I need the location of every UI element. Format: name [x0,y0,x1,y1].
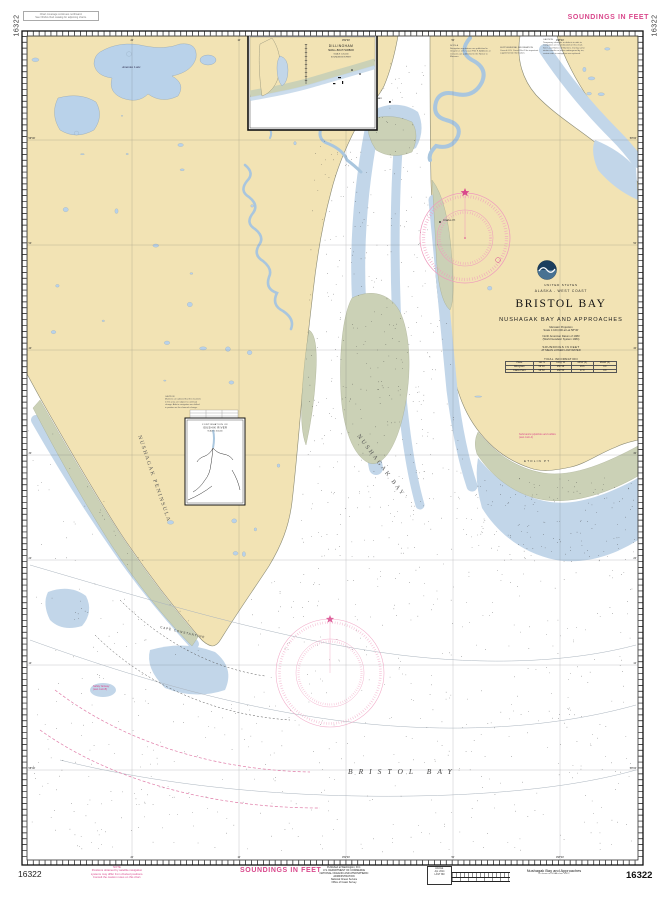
label-etolin-pt: ETOLIN PT [524,459,550,463]
svg-text:159°00': 159°00' [342,39,351,42]
svg-text:158°40': 158°40' [556,39,565,42]
svg-text:50': 50' [451,856,455,859]
noaa-logo [538,261,557,280]
pond [56,284,60,287]
chart-canvas: NUSHAGAK PENINSULA NUSHAGAK BAY BRISTOL … [0,0,667,900]
chart-number-bottom-left: 16322 [18,869,42,879]
chart-number-left-margin: 16322 [13,15,20,37]
pond [605,48,610,51]
inset-a-sub: SMALL-BOAT HARBOR [328,49,354,52]
svg-text:20': 20' [130,39,134,42]
pond [164,341,170,345]
svg-text:30': 30' [29,452,33,455]
pond [126,52,131,57]
pond [587,92,592,95]
svg-text:40': 40' [633,347,637,350]
svg-text:158°40': 158°40' [556,856,565,859]
inset-b-scale: SCALE 1:100,000 [207,430,222,433]
bottom-magenta-note: NOTEPositions obtained by satellite navi… [84,866,150,880]
chart-subtitle: NUSHAGAK BAY AND APPROACHES [497,317,625,323]
pond [247,351,252,355]
label-amanka-lake: Amanka Lake [121,65,141,69]
svg-text:20': 20' [29,557,33,560]
chart-number-right-margin: 16322 [651,15,658,37]
pond [126,153,128,155]
svg-text:59°00': 59°00' [630,137,637,140]
border-scale-ruler-lower [452,877,510,882]
title-country: UNITED STATES [497,283,625,287]
pond [190,273,193,275]
svg-text:50': 50' [451,39,455,42]
chart-number-bottom-right: 16322 [626,870,652,881]
pond [187,302,192,307]
svg-text:58°00': 58°00' [29,767,36,770]
pond [254,528,257,531]
inset-a-soundings: SOUNDINGS IN FEET [331,56,352,58]
clarks-point-mark [439,221,441,223]
inset-b: CONTINUATION OF IGUSHIK RIVER SCALE 1:10… [185,418,245,505]
label-bristol-bay: BRISTOL BAY [348,767,458,776]
pond [294,142,297,145]
pond [242,552,245,557]
svg-text:10': 10' [237,856,241,859]
series-subtitle: as shown on NOAA chart 16322 [522,873,586,875]
tidal-information-table: TIDAL INFORMATION Place Lat. N Long. W M… [505,358,617,374]
nautical-chart-page: NUSHAGAK PENINSULA NUSHAGAK BAY BRISTOL … [0,0,667,900]
pond [74,131,79,135]
pond [229,381,234,384]
svg-text:20': 20' [633,557,637,560]
pond [63,207,68,211]
svg-text:10': 10' [633,662,637,665]
pond [178,143,184,146]
pond [51,330,56,333]
series-caption: Nushagak Bay and Approaches as shown on … [522,868,586,875]
scale-note: Scale 1:100,000 at Lat 58°30' [497,329,625,332]
adjoining-chart-note: Chart coverage continues northward.See N… [23,11,99,21]
svg-text:50': 50' [633,242,637,245]
dillingham-mark [389,101,391,103]
tidal-row-clarks-point: Clarks Point 58°50' 158°33' 17.9 0.0 [506,369,617,373]
title-block: UNITED STATES ALASKA - WEST COAST BRISTO… [497,283,625,373]
svg-text:159°00': 159°00' [342,856,351,859]
svg-text:50': 50' [29,242,33,245]
inset-a: DILLINGHAM SMALL-BOAT HARBOR SCALE 1:20,… [248,35,377,130]
pond [588,77,595,80]
pond [80,154,84,155]
pond [153,244,159,247]
inset-b-sub: IGUSHIK RIVER [203,425,228,429]
soundings-note-top: SOUNDINGS IN FEET [568,14,649,21]
pond [251,205,254,208]
pond [583,67,586,71]
pond [180,169,184,171]
pond [200,347,207,350]
pond [102,320,105,322]
pond [277,464,280,467]
svg-text:30': 30' [633,452,637,455]
title-region: ALASKA - WEST COAST [497,289,625,293]
datum-note-2: (World Geodetic System 1984) [497,338,625,341]
soundings-note-bottom: SOUNDINGS IN FEET [240,867,321,874]
svg-text:10': 10' [237,39,241,42]
svg-text:20': 20' [130,856,134,859]
pond [115,209,118,214]
svg-text:59°00': 59°00' [29,137,36,140]
inset-a-scale: SCALE 1:20,000 [334,52,350,55]
publisher-block: Published at Washington, D.C.U.S. DEPART… [314,866,374,885]
chart-title: BRISTOL BAY [497,298,625,310]
pond [232,519,237,523]
svg-text:10': 10' [29,662,33,665]
tidal-table-title: TIDAL INFORMATION [505,358,617,362]
label-clarks-pt: Clarks Pt [443,218,455,222]
pond [475,396,482,397]
pond [121,115,123,116]
pond [598,93,604,96]
datum-plane-note: AT MEAN LOWER LOW WATER [497,349,625,352]
svg-text:40': 40' [29,347,33,350]
edition-box: 43rd Ed.Apr. 2014LAST NM [427,866,452,885]
map-interior: NUSHAGAK PENINSULA NUSHAGAK BAY BRISTOL … [27,35,638,860]
pond [225,347,230,352]
inset-a-title: DILLINGHAM [329,44,353,48]
pond [32,58,39,62]
svg-text:58°00': 58°00' [630,767,637,770]
pond [233,551,238,555]
pond [488,286,492,290]
pond [164,380,167,381]
